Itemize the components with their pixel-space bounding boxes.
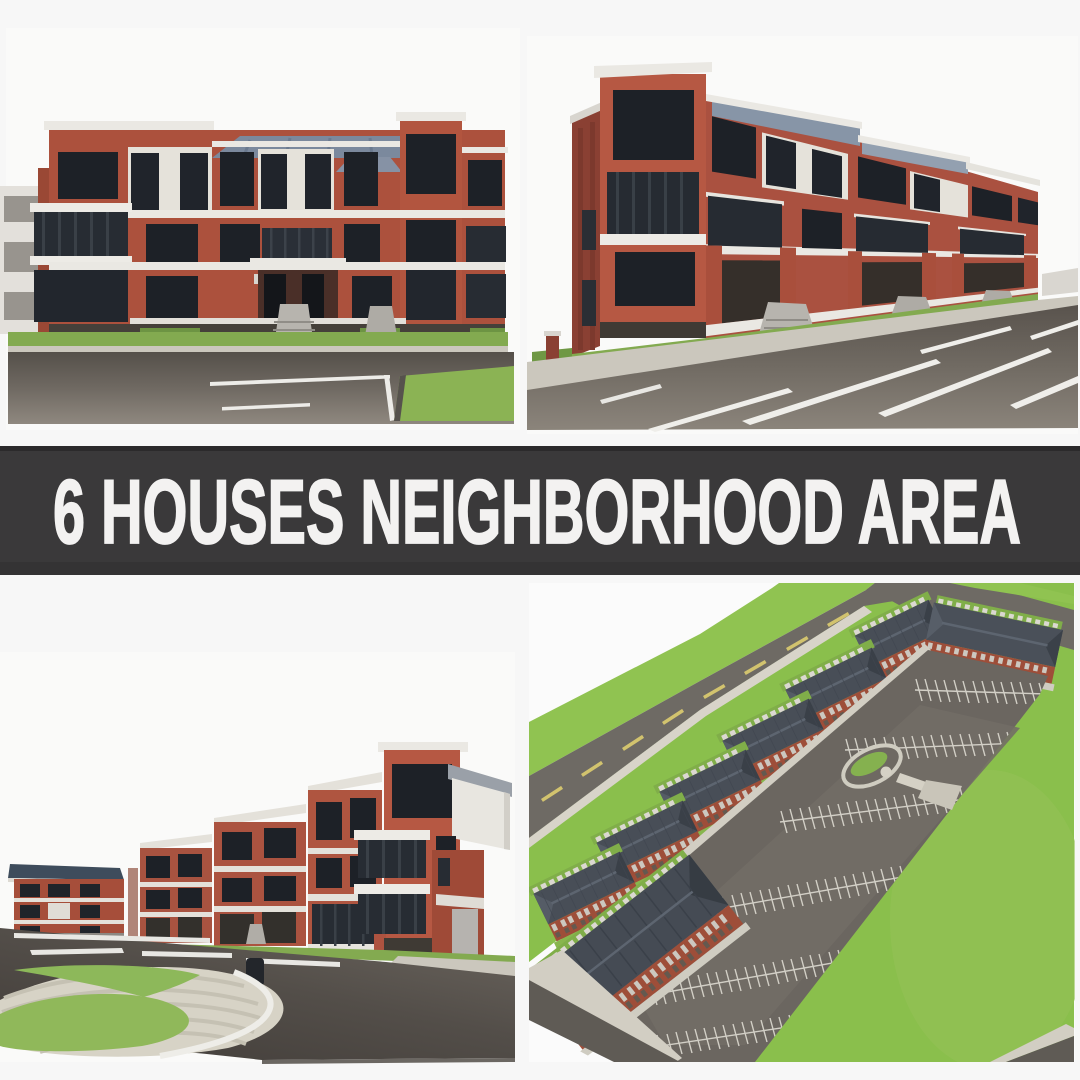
- svg-text:6 HOUSES NEIGHBORHOOD AREA: 6 HOUSES NEIGHBORHOOD AREA: [53, 462, 1021, 563]
